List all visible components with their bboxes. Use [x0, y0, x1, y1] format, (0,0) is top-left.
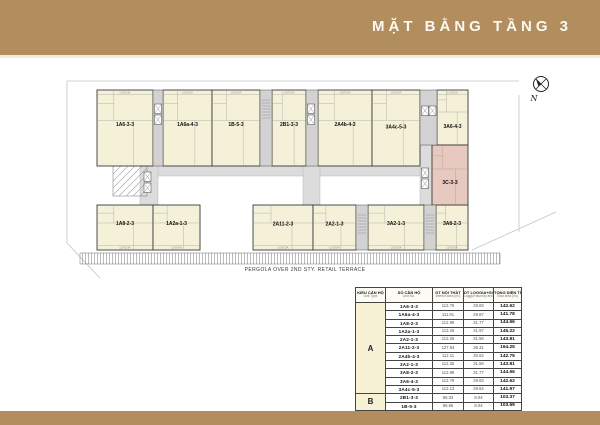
- lot-boundary-line: [67, 81, 100, 278]
- unit-no-cell: 3A2-1-3: [386, 361, 433, 369]
- loggia-label: LOGGIA: [278, 245, 289, 249]
- total-area-cell: 142.62: [494, 377, 522, 385]
- col-header-loggia-area: DT LOGGIA+GIẶT Loggia+laundry area (m²): [464, 288, 494, 303]
- bottom-band: [0, 411, 600, 425]
- total-area-cell: 143.81: [494, 336, 522, 344]
- loggia-label: LOGGIA: [340, 91, 351, 95]
- plan-unit: [436, 205, 468, 250]
- interior-area-cell: 111.91: [433, 311, 464, 319]
- unit-no-cell: 2A4b-4-3: [386, 352, 433, 360]
- unit-label: 3A2-1-3: [387, 221, 405, 227]
- unit-type-cell: A: [356, 303, 386, 394]
- interior-area-cell: 112.89: [433, 369, 464, 377]
- interior-area-cell: 113.25: [433, 327, 464, 335]
- core: [420, 90, 437, 145]
- plan-unit: [97, 90, 153, 166]
- interior-area-cell: 112.13: [433, 385, 464, 393]
- corridor: [303, 166, 320, 205]
- total-area-cell: 144.66: [494, 369, 522, 377]
- loggia-label: LOGGIA: [182, 91, 193, 95]
- loggia-area-cell: 31.97: [464, 327, 494, 335]
- brochure-page: MẶT BẰNG TẦNG 3 LOGGIA1A6-3-3LOGGIA1A6a-…: [0, 0, 600, 425]
- unit-no-cell: 1A2a-1-3: [386, 327, 433, 335]
- total-area-cell: 142.75: [494, 352, 522, 360]
- unit-label: 1A6-3-3: [116, 122, 134, 128]
- interior-area-cell: 95.65: [433, 402, 464, 410]
- page-title: MẶT BẰNG TẦNG 3: [372, 18, 572, 35]
- plan-unit: [432, 145, 468, 205]
- interior-area-cell: 112.79: [433, 377, 464, 385]
- plan-unit: [272, 90, 306, 166]
- loggia-area-cell: 31.56: [464, 336, 494, 344]
- loggia-label: LOGGIA: [447, 245, 458, 249]
- unit-no-cell: 1A6a-4-3: [386, 311, 433, 319]
- interior-area-cell: 112.79: [433, 303, 464, 311]
- compass-north-label: N: [530, 94, 539, 103]
- unit-no-cell: 3A8-2-3: [386, 369, 433, 377]
- total-area-cell: 164.25: [494, 344, 522, 352]
- plan-unit: [437, 90, 468, 145]
- unit-label: 3A6-4-3: [443, 124, 461, 130]
- loggia-area-cell: 31.77: [464, 319, 494, 327]
- unit-no-cell: 3A4c-5-3: [386, 385, 433, 393]
- plan-unit: [97, 205, 153, 250]
- loggia-area-cell: 30.64: [464, 352, 494, 360]
- unit-label: 1B-5-3: [228, 122, 244, 128]
- unit-no-cell: 1B-5-3: [386, 402, 433, 410]
- total-area-cell: 143.81: [494, 361, 522, 369]
- loggia-area-cell: 8.04: [464, 394, 494, 402]
- unit-label: 3C-3-3: [442, 180, 458, 186]
- core: [153, 90, 163, 166]
- corridor: [153, 166, 437, 176]
- unit-label: 1A6a-4-3: [177, 122, 198, 128]
- unit-label: 2A2-1-3: [325, 222, 343, 228]
- unit-no-cell: 1A8-2-3: [386, 319, 433, 327]
- total-area-cell: 145.22: [494, 327, 522, 335]
- unit-label: 3A8-2-3: [443, 221, 461, 227]
- loggia-label: LOGGIA: [284, 91, 295, 95]
- loggia-area-cell: 29.83: [464, 303, 494, 311]
- total-area-cell: 103.69: [494, 402, 522, 410]
- unit-no-cell: 2A2-1-3: [386, 336, 433, 344]
- loggia-area-cell: 8.04: [464, 402, 494, 410]
- interior-area-cell: 95.33: [433, 394, 464, 402]
- plan-unit: [153, 205, 200, 250]
- unit-type-cell: B: [356, 394, 386, 411]
- loggia-area-cell: 29.83: [464, 377, 494, 385]
- core: [306, 90, 318, 166]
- total-area-cell: 103.37: [494, 394, 522, 402]
- table-row: A1A6-3-3112.7929.83142.62: [356, 303, 522, 311]
- core: [424, 205, 436, 250]
- loggia-area-cell: 31.77: [464, 369, 494, 377]
- table-row: B2B1-3-395.338.04103.37: [356, 394, 522, 402]
- unit-label: 1A2a-1-3: [166, 221, 187, 227]
- unit-label: 2A4b-4-3: [334, 122, 355, 128]
- top-banner: MẶT BẰNG TẦNG 3: [0, 0, 600, 58]
- interior-area-cell: 112.11: [433, 352, 464, 360]
- plan-unit: [368, 205, 424, 250]
- total-area-cell: 141.78: [494, 311, 522, 319]
- unit-no-cell: 3A6-4-3: [386, 377, 433, 385]
- unit-label: 3A4c-5-3: [386, 124, 407, 130]
- plan-unit: [163, 90, 212, 166]
- loggia-area-cell: 29.84: [464, 385, 494, 393]
- core: [260, 90, 272, 166]
- table-header-row: KIỂU CĂN HỘ Unit Type SỐ CĂN HỘ Unit No.…: [356, 288, 522, 303]
- loggia-area-cell: 36.31: [464, 344, 494, 352]
- col-header-unit-type: KIỂU CĂN HỘ Unit Type: [356, 288, 386, 303]
- total-area-cell: 142.62: [494, 303, 522, 311]
- loggia-label: LOGGIA: [391, 245, 402, 249]
- loggia-label: LOGGIA: [171, 245, 182, 249]
- loggia-label: LOGGIA: [120, 91, 131, 95]
- col-header-unit-no: SỐ CĂN HỘ Unit No.: [386, 288, 433, 303]
- loggia-label: LOGGIA: [329, 245, 340, 249]
- interior-area-cell: 127.94: [433, 344, 464, 352]
- plan-unit: [318, 90, 372, 166]
- interior-area-cell: 112.25: [433, 336, 464, 344]
- unit-no-cell: 2A11-2-3: [386, 344, 433, 352]
- pergola-caption: PERGOLA OVER 2ND STY. RETAIL TERRACE: [245, 267, 366, 273]
- unit-label: 2B1-3-3: [280, 122, 298, 128]
- unit-no-cell: 1A6-3-3: [386, 303, 433, 311]
- loggia-label: LOGGIA: [391, 91, 402, 95]
- loggia-area-cell: 29.87: [464, 311, 494, 319]
- total-area-cell: 141.97: [494, 385, 522, 393]
- unit-area-table: KIỂU CĂN HỘ Unit Type SỐ CĂN HỘ Unit No.…: [355, 287, 522, 421]
- core: [356, 205, 368, 250]
- unit-no-cell: 2B1-3-3: [386, 394, 433, 402]
- interior-area-cell: 112.25: [433, 361, 464, 369]
- col-header-total-area: TỔNG DIỆN TÍCH Total area (m²): [494, 288, 522, 303]
- plan-unit: [212, 90, 260, 166]
- unit-label: 2A11-2-3: [273, 222, 294, 228]
- loggia-label: LOGGIA: [447, 91, 458, 95]
- lot-boundary-line: [472, 212, 556, 250]
- loggia-area-cell: 31.56: [464, 361, 494, 369]
- total-area-cell: 144.66: [494, 319, 522, 327]
- interior-area-cell: 112.89: [433, 319, 464, 327]
- pergola-strip: [80, 253, 500, 264]
- loggia-label: LOGGIA: [231, 91, 242, 95]
- col-header-interior-area: DT NỘI THẤT Interior area (m²): [433, 288, 464, 303]
- unit-label: 1A8-2-3: [116, 221, 134, 227]
- loggia-label: LOGGIA: [120, 245, 131, 249]
